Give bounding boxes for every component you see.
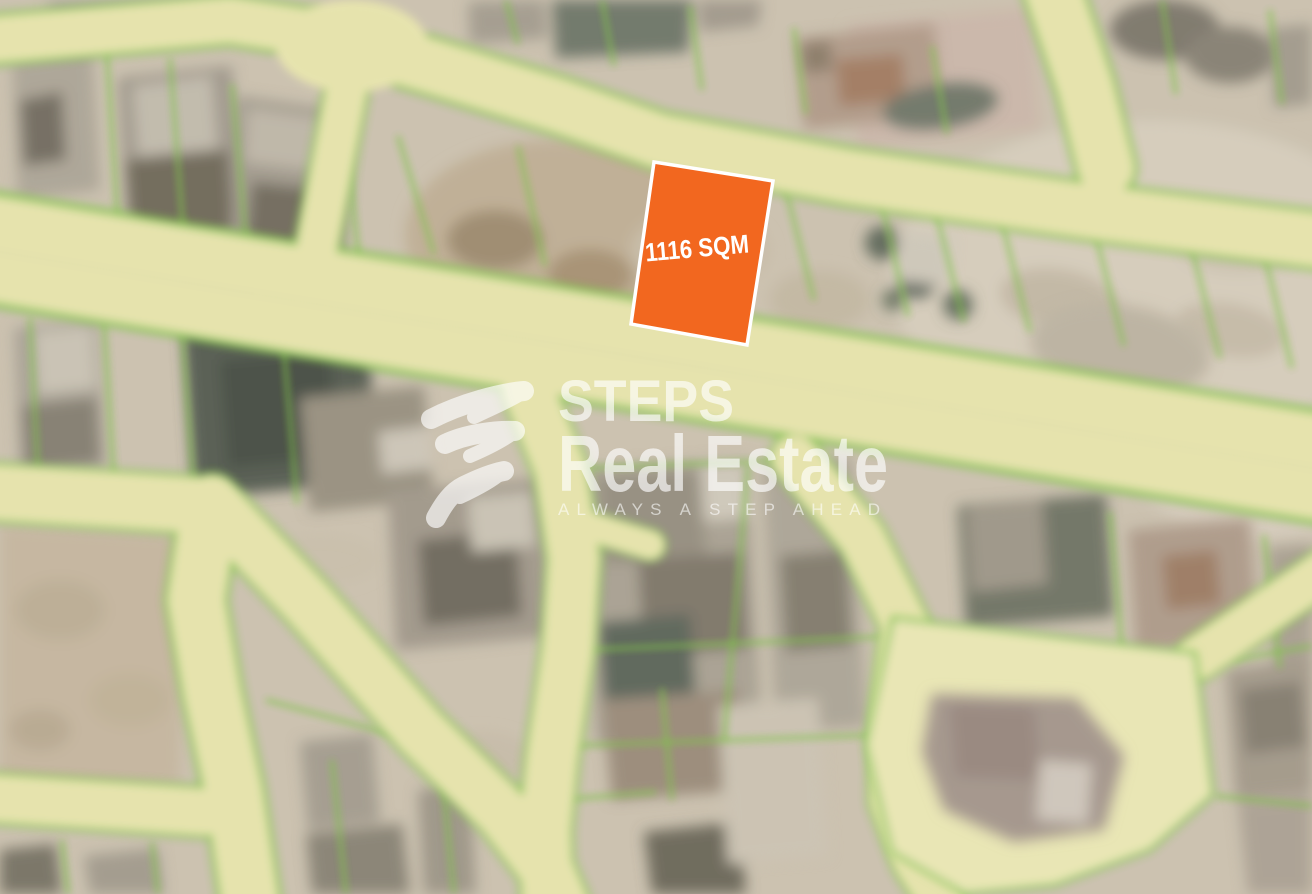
- svg-text:ALWAYS A STEP AHEAD: ALWAYS A STEP AHEAD: [558, 500, 885, 519]
- svg-text:Real Estate: Real Estate: [558, 419, 888, 508]
